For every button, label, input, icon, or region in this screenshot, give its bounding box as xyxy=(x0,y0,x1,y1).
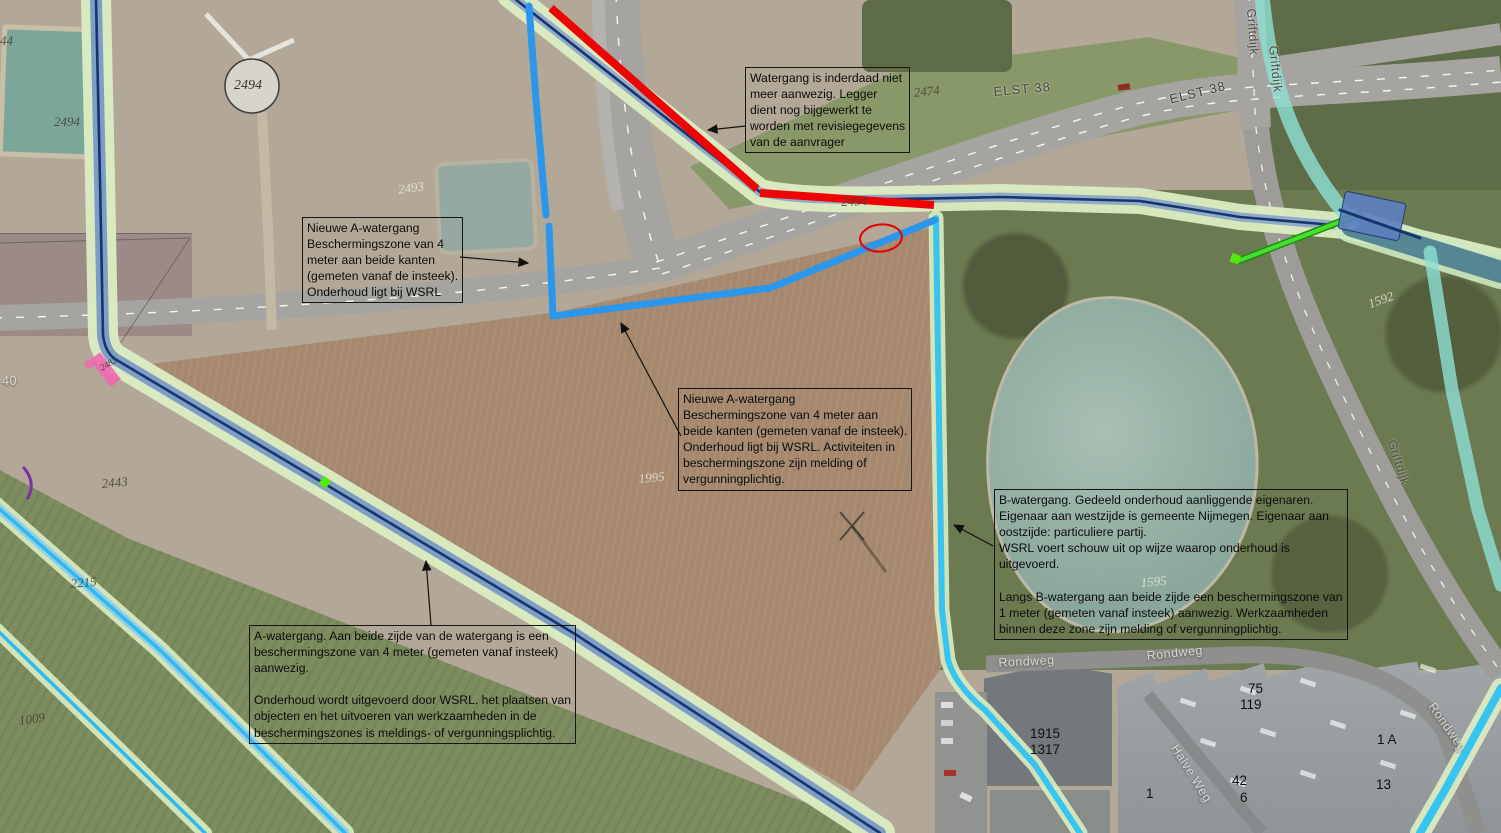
annotation-box-b-watergang: B-watergang. Gedeeld onderhoud aanliggen… xyxy=(994,489,1348,640)
annotations-layer: Watergang is inderdaad niet meer aanwezi… xyxy=(0,0,1501,833)
annotation-box-a-watergang: A-watergang. Aan beide zijde van de wate… xyxy=(249,625,576,744)
map-canvas[interactable]: 44249424932474ELST 38ELST 3824941592Grif… xyxy=(0,0,1501,833)
annotation-box-nieuwe-a-watergang-groot: Nieuwe A-watergang Beschermingszone van … xyxy=(678,388,912,491)
annotation-box-watergang-verwijderd: Watergang is inderdaad niet meer aanwezi… xyxy=(745,67,910,153)
annotation-box-nieuwe-a-watergang-klein: Nieuwe A-watergang Beschermingszone van … xyxy=(302,217,463,303)
